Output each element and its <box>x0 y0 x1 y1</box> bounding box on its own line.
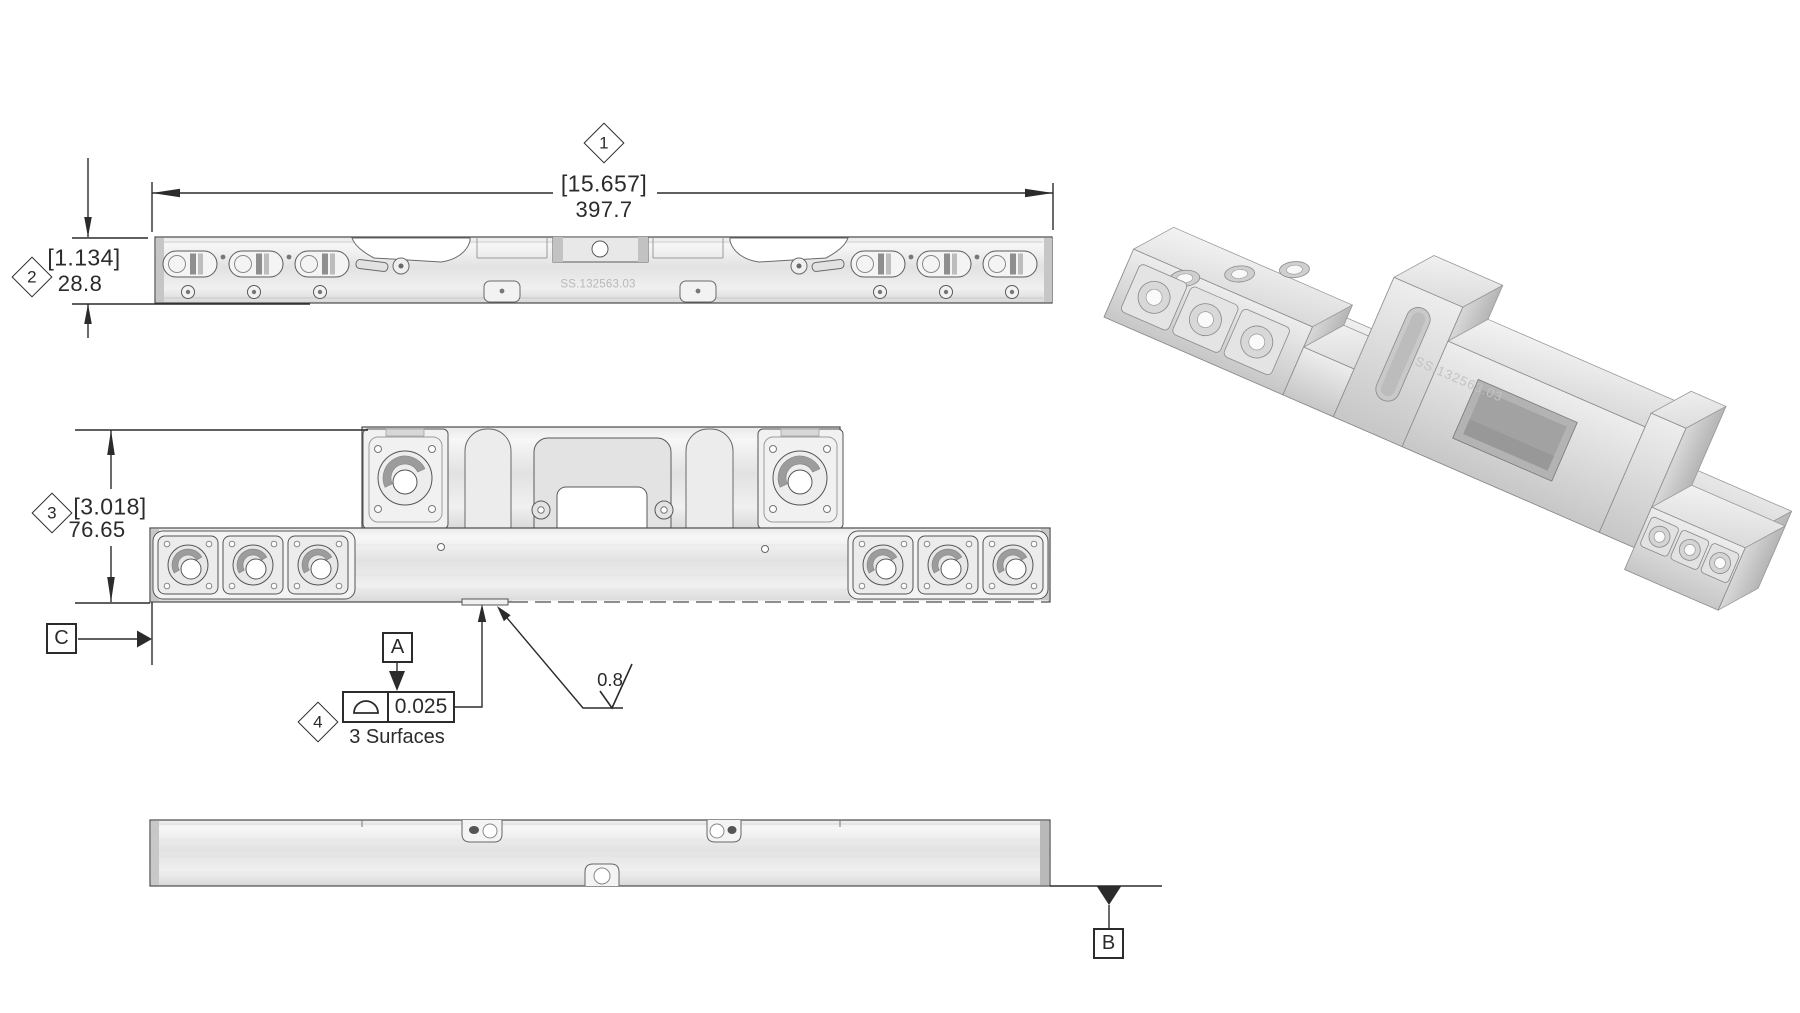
drawing-sheet: 1 2 3 4 [15.657] 397.7 [1.134] 28.8 [3.0… <box>0 0 1800 1013</box>
balloon-1-label: 1 <box>599 133 608 153</box>
fcf-leader <box>455 622 482 707</box>
height-dimension-inch: [3.018] <box>73 496 146 519</box>
datum-a-box: A <box>382 632 413 663</box>
datum-c-box: C <box>46 623 77 654</box>
thickness-dimension-mm: 28.8 <box>58 273 102 295</box>
length-dimension-inch: [15.657] <box>561 173 647 196</box>
datum-b-triangle <box>1097 887 1121 906</box>
feature-control-frame: 0.025 <box>342 691 455 723</box>
balloon-2-label: 2 <box>27 267 36 287</box>
annotation-lines-layer <box>0 0 1800 1013</box>
engraved-part-number-top-view: SS.132563.03 <box>560 279 635 291</box>
datum-b-label: B <box>1102 932 1115 955</box>
tolerance-note: 3 Surfaces <box>349 727 445 747</box>
datum-c-triangle <box>137 631 152 648</box>
length-dimension-mm: 397.7 <box>575 199 632 221</box>
height-dimension-mm: 76.65 <box>68 519 125 541</box>
tolerance-value: 0.025 <box>389 693 453 721</box>
profile-of-surface-icon <box>344 693 389 721</box>
balloon-3-label: 3 <box>47 503 56 523</box>
fcf-arrow <box>478 604 486 622</box>
length-arrow-left <box>152 189 180 197</box>
thickness-dimension-inch: [1.134] <box>47 247 120 270</box>
datum-b-box: B <box>1093 928 1124 959</box>
surface-finish-leader <box>507 617 623 708</box>
datum-c-label: C <box>54 627 68 650</box>
balloon-4-label: 4 <box>313 712 322 732</box>
datum-a-triangle <box>389 671 405 691</box>
surface-roughness-value: 0.8 <box>597 671 623 690</box>
length-arrow-right <box>1025 189 1053 197</box>
datum-a-label: A <box>391 636 404 659</box>
